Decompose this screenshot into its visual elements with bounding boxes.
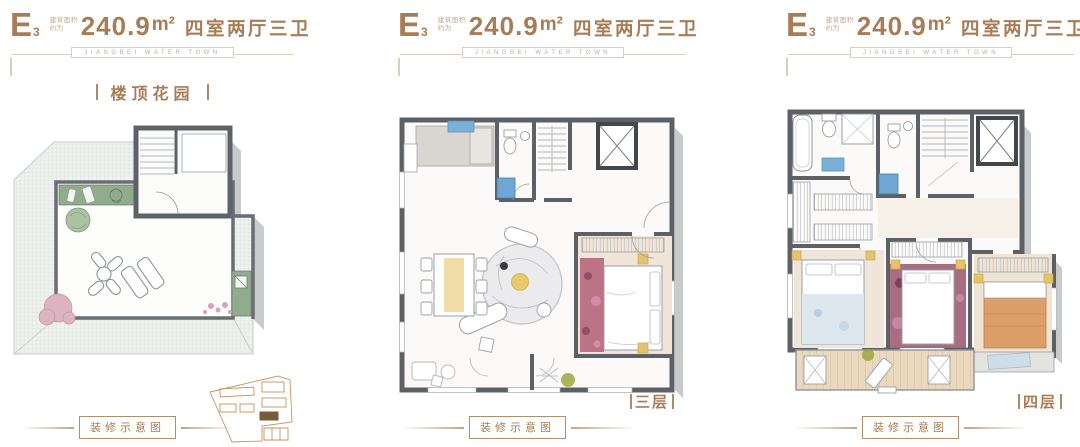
unit-type-sub: 3 — [421, 25, 428, 39]
pillow — [835, 264, 861, 275]
panel-fourth-floor: E 3 建筑面积 约为 240.9 m² 四室两厅三卫 JIANGBEI WAT… — [786, 8, 1076, 63]
footer-line-left — [793, 427, 857, 429]
pillow — [650, 310, 660, 344]
banner-flourish — [786, 58, 788, 76]
washer — [879, 174, 898, 194]
area-value: 240.9 — [857, 11, 927, 42]
brand-banner: JIANGBEI WATER TOWN — [786, 47, 1076, 63]
nightstand — [891, 260, 900, 269]
panel-rooftop: E 3 建筑面积 约为 240.9 m² 四室两厅三卫 JIANGBEI WAT… — [10, 8, 295, 104]
pillow-band — [984, 282, 1046, 298]
planting-strip — [59, 185, 136, 205]
banner-flourish — [398, 58, 400, 76]
coffee-table — [512, 274, 529, 291]
footer-rooftop: 装修示意图 — [20, 416, 235, 439]
layout-spec: 四室两厅三卫 — [573, 15, 699, 41]
wardrobe — [978, 258, 1048, 272]
pillow — [929, 273, 950, 283]
kitchen — [404, 121, 494, 172]
pillow — [806, 264, 832, 275]
wardrobe — [892, 242, 962, 257]
brand-banner: JIANGBEI WATER TOWN — [398, 47, 688, 63]
unit-type-sub: 3 — [809, 25, 816, 39]
title-bar-right — [207, 84, 209, 100]
unit-type-sub: 3 — [33, 25, 40, 39]
area-value: 240.9 — [469, 11, 539, 42]
footer-line-right — [181, 427, 235, 429]
footer-line-left — [20, 427, 74, 429]
layout-spec: 四室两厅三卫 — [185, 15, 311, 41]
nightstand — [792, 251, 801, 260]
floor-plan-roof-garden — [8, 116, 303, 406]
title-bar-left — [96, 84, 98, 100]
footer-label: 装修示意图 — [469, 416, 566, 439]
unit-type: E — [786, 8, 808, 41]
footer-line-left — [400, 427, 464, 429]
area-note: 建筑面积 约为 — [826, 17, 854, 33]
nightstand — [866, 251, 875, 260]
pillow — [650, 272, 660, 306]
unit-type: E — [10, 8, 32, 41]
footer-fourth-floor: 装修示意图 — [793, 416, 1028, 439]
toilet — [823, 121, 836, 137]
planting-corner — [232, 271, 251, 316]
footer-line-right — [571, 427, 635, 429]
dining-set — [421, 254, 487, 316]
area-note: 建筑面积 约为 — [50, 17, 78, 33]
area-unit: m² — [152, 14, 175, 36]
bedroom-3 — [974, 254, 1053, 352]
footer-label: 装修示意图 — [79, 416, 176, 439]
sink — [448, 121, 474, 132]
floor-label-4: 四层 — [1018, 391, 1062, 412]
nightstand — [1044, 274, 1053, 283]
bedroom — [578, 236, 672, 354]
plant — [862, 349, 874, 361]
stair-enclosure — [136, 128, 230, 216]
pillow — [905, 273, 926, 283]
washbasin — [497, 178, 515, 198]
footer-label: 装修示意图 — [862, 416, 959, 439]
footer-third-floor: 装修示意图 — [400, 416, 635, 439]
unit-header: E 3 建筑面积 约为 240.9 m² 四室两厅三卫 — [786, 8, 1076, 42]
nightstand — [956, 260, 965, 269]
panel-third-floor: E 3 建筑面积 约为 240.9 m² 四室两厅三卫 JIANGBEI WAT… — [398, 8, 688, 63]
elevator — [598, 124, 636, 168]
highlighted-building — [260, 412, 278, 420]
banner-flourish — [10, 58, 12, 76]
banner-text: JIANGBEI WATER TOWN — [850, 47, 1012, 58]
area-value: 240.9 — [81, 11, 151, 42]
elevator — [978, 118, 1016, 164]
toilet — [888, 132, 900, 148]
nightstand — [974, 274, 983, 283]
unit-header: E 3 建筑面积 约为 240.9 m² 四室两厅三卫 — [10, 8, 295, 42]
brand-banner: JIANGBEI WATER TOWN — [10, 47, 295, 63]
toilet — [504, 138, 516, 154]
poster-canvas: E 3 建筑面积 约为 240.9 m² 四室两厅三卫 JIANGBEI WAT… — [0, 0, 1080, 447]
wardrobe — [582, 238, 664, 252]
unit-header: E 3 建筑面积 约为 240.9 m² 四室两厅三卫 — [398, 8, 688, 42]
area-note: 建筑面积 约为 — [438, 17, 466, 33]
plant — [561, 373, 575, 387]
tree — [66, 208, 90, 232]
balcony — [796, 349, 974, 393]
layout-spec: 四室两厅三卫 — [961, 15, 1080, 41]
floor-label-3: 三层 — [630, 391, 674, 412]
floor-plan-third-floor — [392, 106, 712, 398]
plan-title-rooftop: 楼顶花园 — [10, 80, 295, 104]
footer-line-right — [964, 427, 1028, 429]
banner-text: JIANGBEI WATER TOWN — [462, 47, 624, 58]
hallway — [878, 198, 1018, 238]
blanket — [802, 294, 864, 344]
banner-text: JIANGBEI WATER TOWN — [71, 47, 233, 58]
area-unit: m² — [540, 14, 563, 36]
floor-plan-fourth-floor — [778, 98, 1078, 400]
unit-type: E — [398, 8, 420, 41]
shadow — [675, 128, 683, 398]
area-unit: m² — [928, 14, 951, 36]
rug — [580, 258, 604, 352]
bedroom-1 — [792, 250, 884, 348]
side-terrace — [974, 352, 1054, 372]
nightstand — [638, 343, 648, 353]
washbasin — [822, 158, 844, 171]
